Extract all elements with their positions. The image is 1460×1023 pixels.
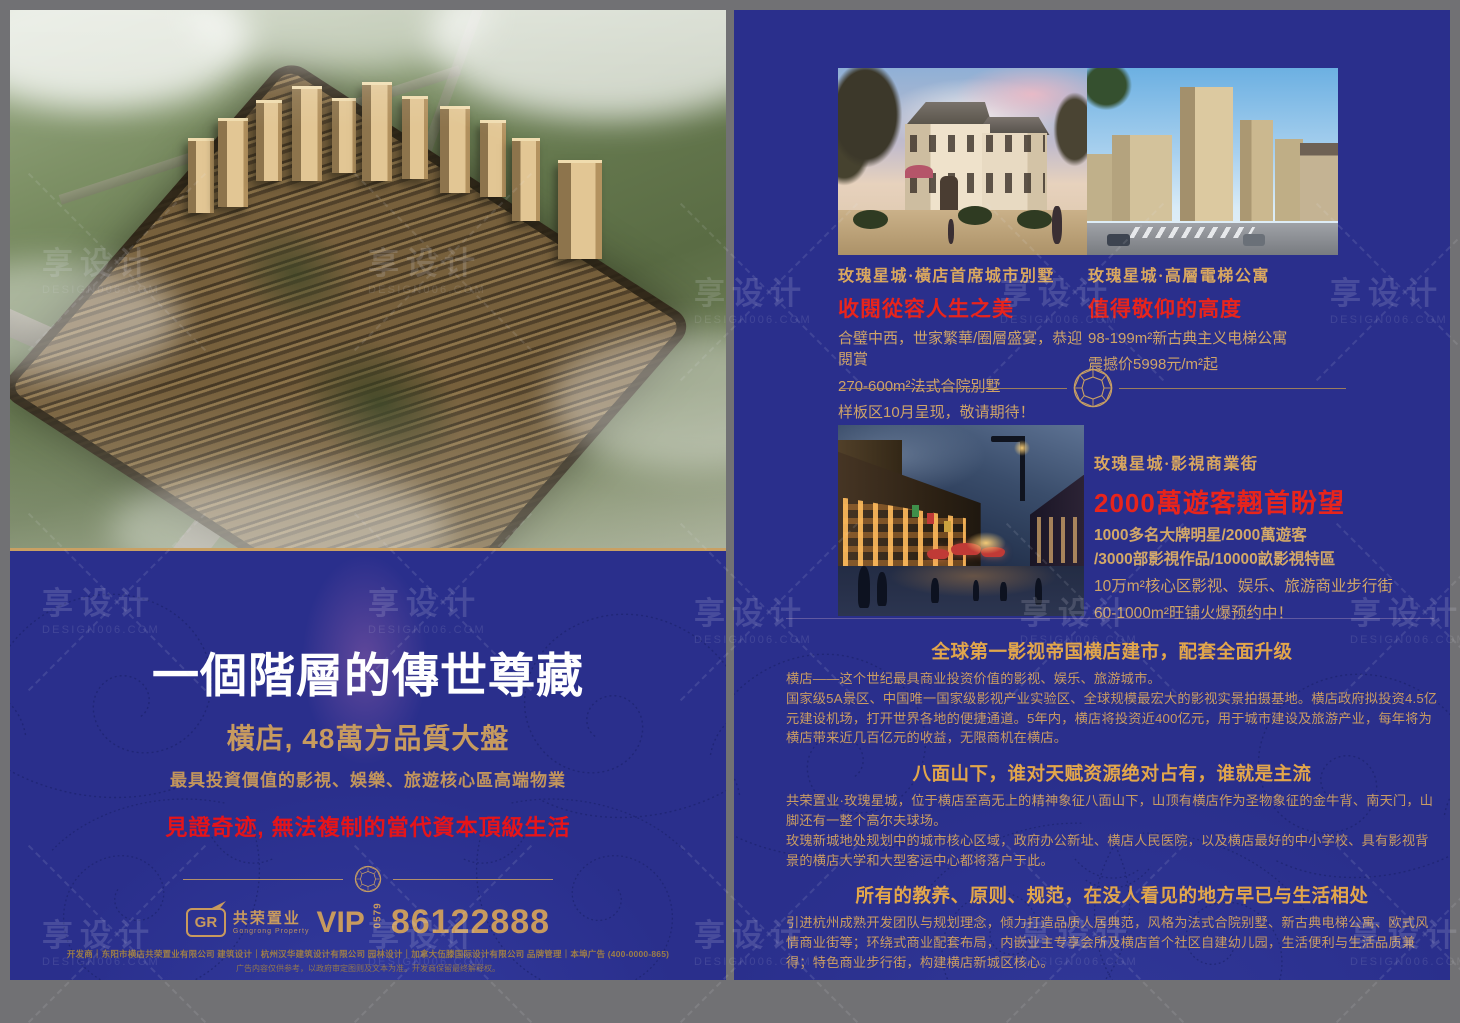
vip-label: VIP xyxy=(316,906,364,940)
gem-divider xyxy=(10,864,726,894)
developer-logo-row: GR 共荣置业 Gongrong Property VIP 0579 86122… xyxy=(10,903,726,942)
section-heading: 全球第一影视帝国横店建市，配套全面升级 xyxy=(786,638,1438,664)
villa-photo xyxy=(838,68,1087,255)
gold-separator xyxy=(10,548,726,551)
divider-line xyxy=(840,388,1067,389)
feature-caption-street: 玫瑰星城·影視商業街 2000萬遊客翹首盼望 1000多名大牌明星/2000萬遊… xyxy=(1094,450,1404,625)
umbrella xyxy=(905,165,932,178)
person xyxy=(1052,206,1062,243)
left-page: 一個階層的傳世尊藏 橫店, 48萬方品質大盤 最具投資價值的影視、娛樂、旅遊核心… xyxy=(10,10,726,980)
area-code: 0579 xyxy=(372,917,383,929)
tree xyxy=(838,68,908,195)
person xyxy=(858,566,870,608)
apartment-tower xyxy=(1180,87,1233,222)
info-section: 八面山下，谁对天赋资源绝对占有，谁就是主流 共荣置业·玫瑰星城，位于横店至高无上… xyxy=(786,760,1438,870)
section-body: 横店——这个世纪最具商业投资价值的影视、娱乐、旅游城市。 国家级5A景区、中国唯… xyxy=(786,669,1438,748)
shrub xyxy=(1017,210,1052,229)
crosswalk xyxy=(1129,227,1256,238)
section-heading: 所有的教养、原则、规范，在没人看见的地方早已与生活相处 xyxy=(786,882,1438,908)
villa-windows xyxy=(910,135,1044,152)
tagline: 最具投資價值的影視、娛樂、旅遊核心區高端物業 xyxy=(10,766,726,791)
feature-slogan: 值得敬仰的高度 xyxy=(1088,293,1338,323)
info-section: 全球第一影视帝国横店建市，配套全面升级 横店——这个世纪最具商业投资价值的影视、… xyxy=(786,638,1438,748)
developer-name-cn: 共荣置业 xyxy=(233,911,301,926)
feature-line: 1000多名大牌明星/2000萬遊客 xyxy=(1094,525,1404,547)
section-heading: 八面山下，谁对天赋资源绝对占有，谁就是主流 xyxy=(786,760,1438,786)
lit-windows xyxy=(1037,517,1081,563)
feature-line: 60-1000m²旺铺火爆预约中！ xyxy=(1094,603,1404,625)
main-headline: 一個階層的傳世尊藏 xyxy=(10,650,726,704)
info-section: 所有的教养、原则、规范，在没人看见的地方早已与生活相处 引进杭州成熟开发团队与规… xyxy=(786,882,1438,972)
sub-headline: 橫店, 48萬方品質大盤 xyxy=(10,717,726,757)
feature-line: 10万m²核心区影视、娱乐、旅游商业步行街 xyxy=(1094,576,1404,598)
section-body: 引进杭州成熟开发团队与规划理念，倾力打造品质人居典范，风格为法式合院别墅、新古典… xyxy=(786,913,1438,972)
apartment-tower xyxy=(1112,135,1172,221)
apartment-tower xyxy=(1087,154,1112,221)
feature-title: 玫瑰星城·高層電梯公寓 xyxy=(1088,262,1338,286)
logo-letters: GR xyxy=(195,914,218,931)
person xyxy=(877,572,887,606)
right-page: 玫瑰星城·橫店首席城市別墅 收閱從容人生之美 合璧中西，世家繁華/圈層盛宴，恭迎… xyxy=(734,10,1450,980)
legal-credits: 开发商｜东阳市横店共荣置业有限公司 建筑设计｜杭州汉华建筑设计有限公司 园林设计… xyxy=(10,948,726,960)
person xyxy=(948,219,954,243)
apartment-photo xyxy=(1087,68,1338,255)
person xyxy=(931,578,938,603)
shrub xyxy=(853,210,888,229)
diamond-gem-icon xyxy=(353,864,383,894)
feature-caption-apartment: 玫瑰星城·高層電梯公寓 值得敬仰的高度 98-199m²新古典主义电梯公寓 震撼… xyxy=(1088,262,1338,376)
legal-disclaimer: 广告内容仅供参考，以政府审定图则及文本为准。开发商保留最终解释权。 xyxy=(10,963,726,974)
divider-line xyxy=(1119,388,1346,389)
banner-flag xyxy=(927,513,934,524)
feature-line: 98-199m²新古典主义电梯公寓 xyxy=(1088,328,1338,349)
gem-divider xyxy=(840,362,1346,414)
banner-flag xyxy=(912,505,919,516)
aerial-render-photo xyxy=(10,10,726,548)
feature-line: /3000部影視作品/10000畝影視特區 xyxy=(1094,549,1404,571)
commercial-building xyxy=(1300,143,1338,222)
feature-slogan: 2000萬遊客翹首盼望 xyxy=(1094,483,1404,520)
divider-line xyxy=(393,879,553,880)
tree xyxy=(1045,83,1087,186)
feature-title: 玫瑰星城·影視商業街 xyxy=(1094,450,1404,474)
person xyxy=(1035,578,1042,605)
section-divider xyxy=(786,618,1434,619)
photo-shade xyxy=(10,10,726,548)
street-ground xyxy=(838,566,1084,616)
diamond-gem-icon xyxy=(1071,366,1115,410)
phone-number: 86122888 xyxy=(391,903,550,942)
tree xyxy=(1087,68,1142,120)
section-body: 共荣置业·玫瑰星城，位于横店至高无上的精神象征八面山下，山顶有横店作为圣物象征的… xyxy=(786,791,1438,870)
info-sections: 全球第一影视帝国横店建市，配套全面升级 横店——这个世纪最具商业投资价值的影视、… xyxy=(786,638,1438,980)
car xyxy=(1107,234,1130,245)
divider-line xyxy=(183,879,343,880)
villa-door xyxy=(940,176,957,212)
car xyxy=(1243,234,1266,245)
apartment-tower xyxy=(1275,139,1303,221)
developer-name: 共荣置业 Gongrong Property xyxy=(233,911,310,935)
feature-slogan: 收閱從容人生之美 xyxy=(838,293,1083,323)
feature-title: 玫瑰星城·橫店首席城市別墅 xyxy=(838,262,1083,286)
umbrella xyxy=(927,549,949,559)
gongrong-logo-icon: GR xyxy=(186,908,226,937)
shop-glow xyxy=(966,532,1006,554)
red-slogan: 見證奇迹, 無法複制的當代資本頂級生活 xyxy=(10,810,726,842)
apartment-tower xyxy=(1240,120,1273,221)
street-photo xyxy=(838,425,1084,616)
flyer-canvas: 一個階層的傳世尊藏 橫店, 48萬方品質大盤 最具投資價值的影視、娛樂、旅遊核心… xyxy=(0,0,1460,990)
developer-name-en: Gongrong Property xyxy=(233,928,310,935)
person xyxy=(1000,582,1006,601)
banner-flag xyxy=(944,521,951,532)
